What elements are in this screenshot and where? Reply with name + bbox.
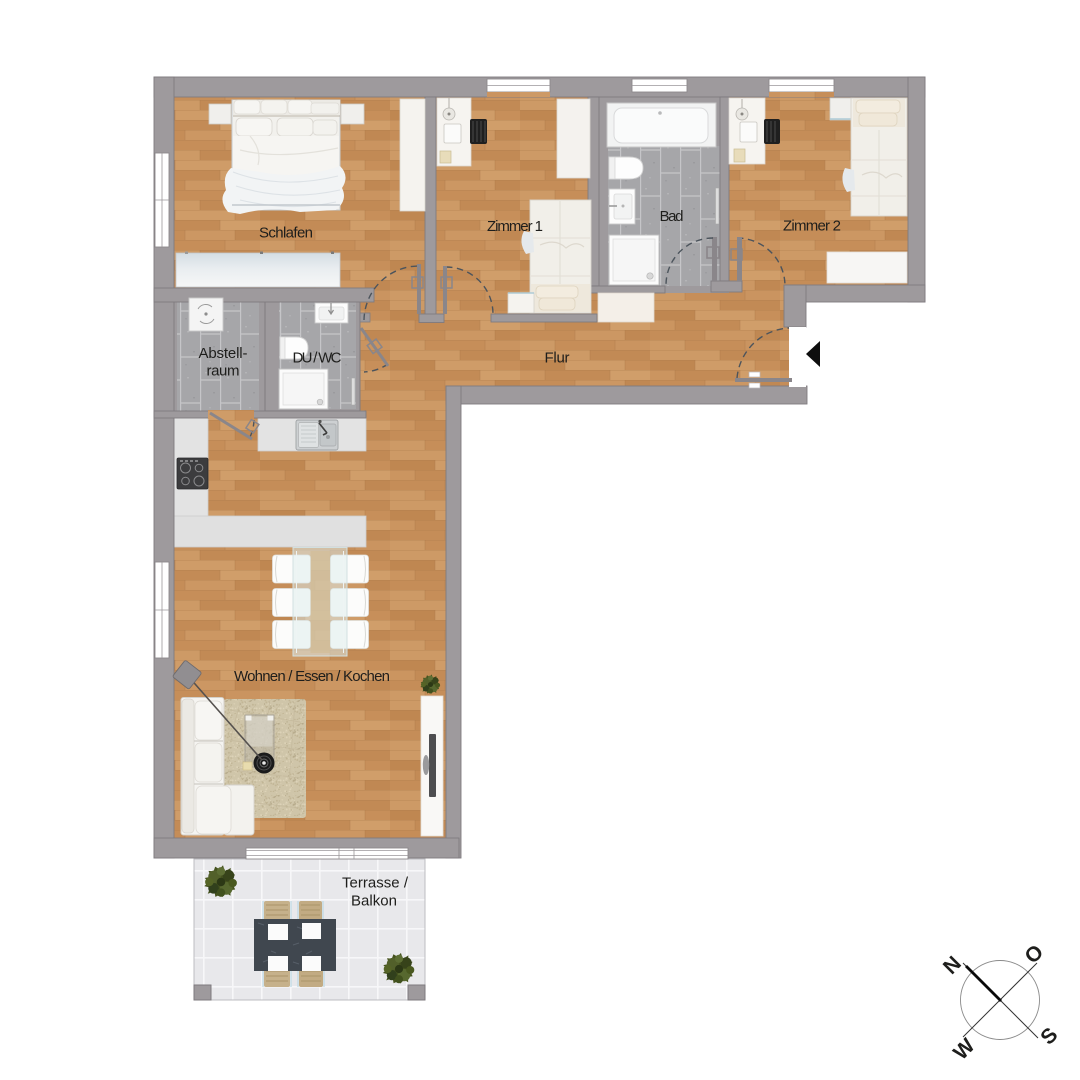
svg-text:Bad: Bad [660,208,684,225]
svg-text:Balkon: Balkon [351,893,397,910]
svg-text:Schlafen: Schlafen [259,225,313,242]
svg-text:Terrasse /: Terrasse / [342,875,409,892]
svg-text:W: W [949,1034,979,1064]
svg-text:DU / WC: DU / WC [293,350,342,367]
svg-text:raum: raum [207,363,240,380]
svg-text:Zimmer 2: Zimmer 2 [783,218,841,235]
svg-text:O: O [1020,940,1048,968]
svg-text:N: N [939,952,966,979]
svg-text:Flur: Flur [545,350,570,367]
svg-text:Zimmer 1: Zimmer 1 [487,218,543,235]
svg-text:Abstell-: Abstell- [199,345,248,362]
svg-text:S: S [1036,1023,1062,1049]
svg-text:Wohnen / Essen / Kochen: Wohnen / Essen / Kochen [234,668,390,685]
